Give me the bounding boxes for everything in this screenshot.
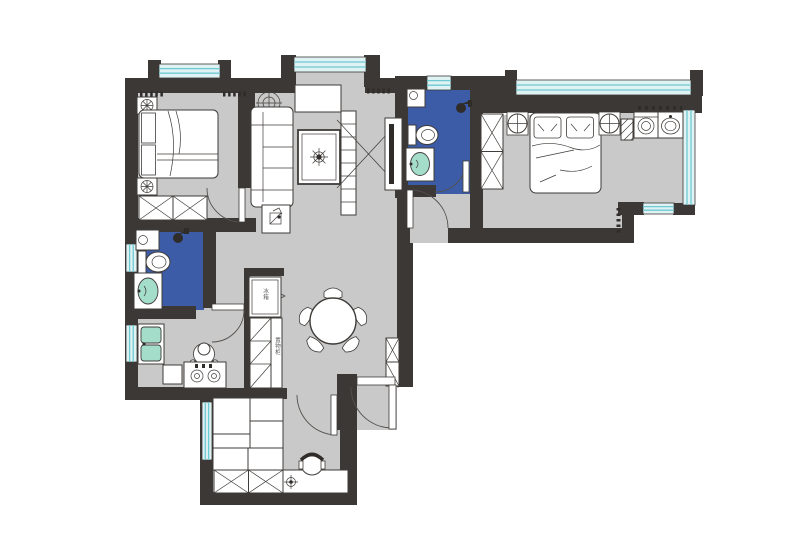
stove-icon (184, 362, 226, 388)
wardrobe (139, 196, 207, 220)
side-table-basket-icon (262, 205, 290, 233)
master-top-window (516, 80, 691, 95)
toilet-icon (408, 125, 438, 145)
nightstand-icon (137, 178, 157, 195)
floor-plan: 冰箱 置物柜 (0, 0, 800, 548)
fridge-cabinet-unit: 冰箱 置物柜 (249, 277, 285, 388)
small-cabinet (136, 230, 159, 250)
bathroom1-window (126, 244, 137, 272)
tall-cabinet: 置物柜 (250, 318, 282, 388)
living-bay-window (294, 57, 366, 72)
wardrobe (214, 470, 283, 493)
bed-double (530, 113, 601, 193)
rug-ornament-icon (310, 148, 328, 166)
duct-shaft (621, 119, 633, 140)
master-right-window (683, 110, 695, 205)
bathroom2-window (427, 76, 451, 90)
stool (163, 365, 182, 384)
small-cabinet (407, 89, 425, 107)
bedroom1-window (159, 64, 220, 78)
round-side-table-icon (599, 112, 620, 135)
toilet-icon (138, 251, 170, 273)
round-side-table-icon (507, 112, 528, 135)
master-se-window (643, 203, 674, 214)
washbasin-icon (134, 273, 162, 309)
cabinet-label: 置物柜 (274, 337, 281, 356)
kitchen-sink-icon (658, 112, 683, 138)
dining-table (310, 298, 356, 344)
tatami-bed (213, 398, 283, 470)
washing-machine-icon (634, 112, 658, 138)
wardrobe (481, 114, 503, 189)
bed-double (139, 110, 218, 178)
sofa (251, 107, 293, 207)
floor-plan-drawing: 冰箱 置物柜 (0, 0, 800, 548)
fridge-label: 冰箱 (262, 287, 269, 301)
study-window (202, 402, 212, 460)
fridge: 冰箱 (249, 277, 285, 317)
console-cabinet (295, 85, 341, 112)
rug (298, 130, 340, 184)
washbasin-icon (406, 148, 434, 181)
kitchen-window (126, 325, 137, 362)
double-sink-icon (138, 324, 164, 364)
